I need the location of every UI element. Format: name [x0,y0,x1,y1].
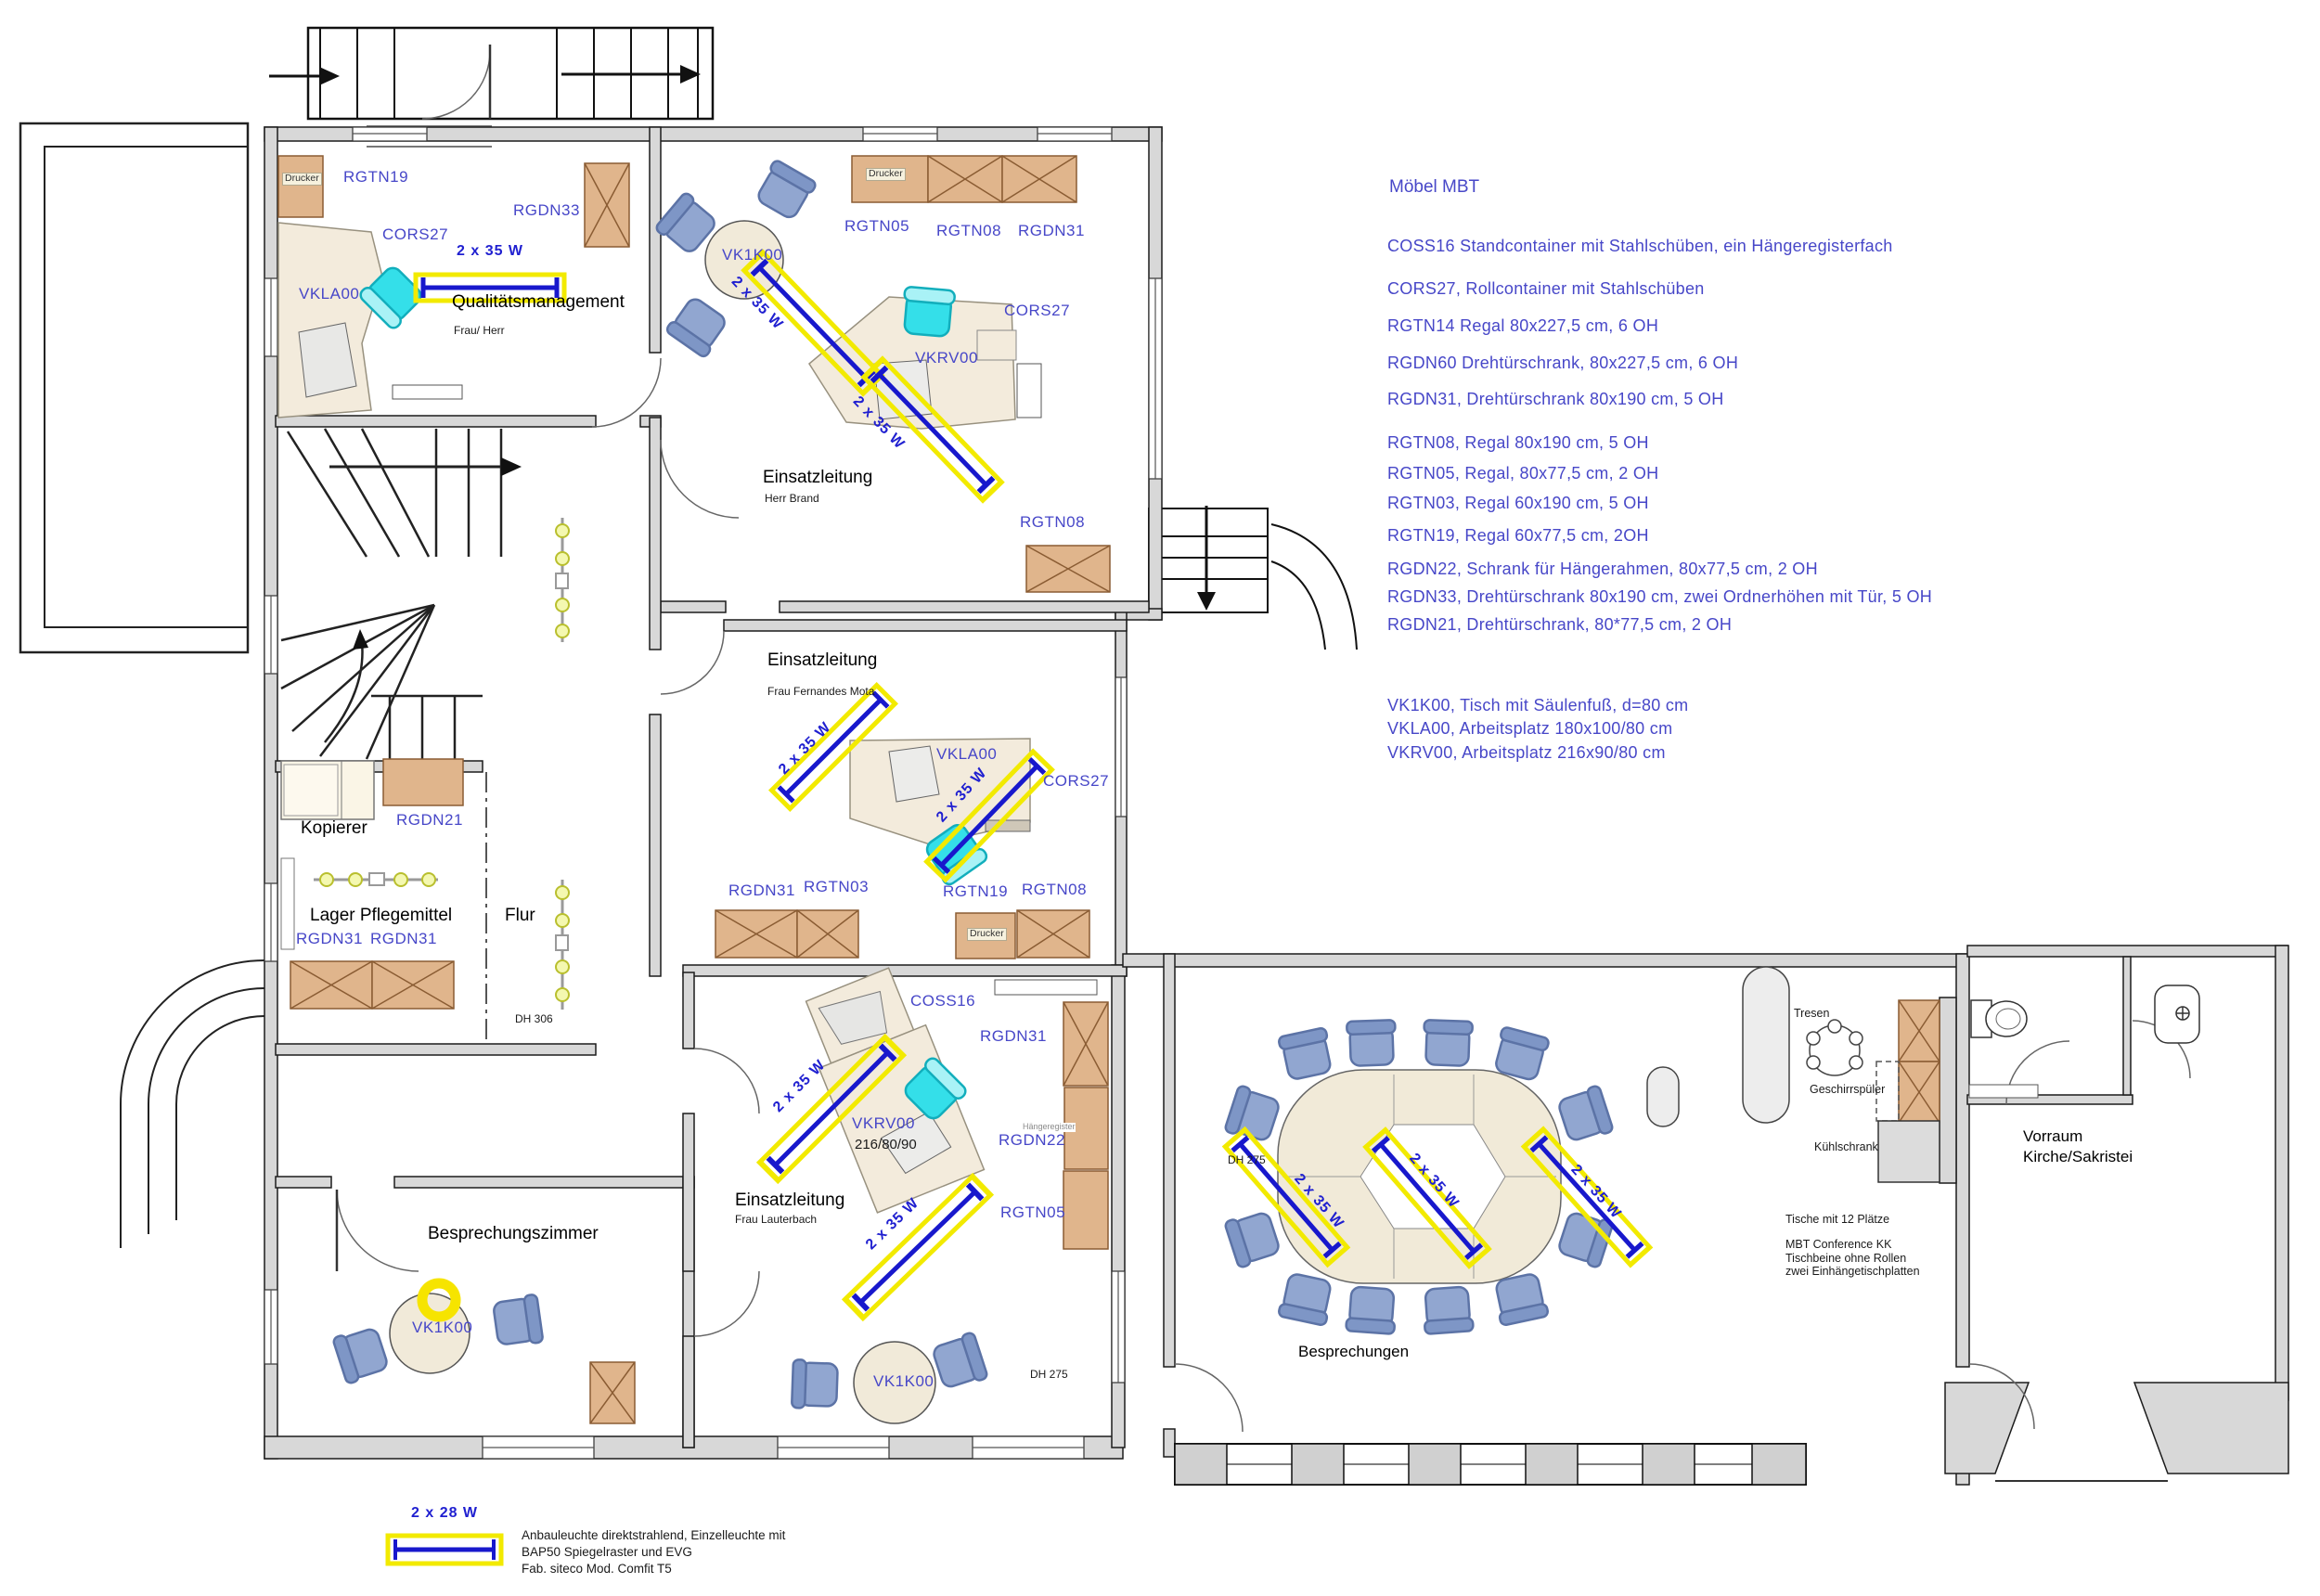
mid-cabinet-rgtn08 [1026,546,1110,592]
code-rgtn05: RGTN05 [844,218,909,236]
code-vk1k00: VK1K00 [873,1373,934,1391]
code-vkla00: VKLA00 [299,286,359,303]
code-rgdn21: RGDN21 [396,812,463,830]
room-name-besprechungszimmer: Besprechungszimmer [428,1225,599,1244]
code-vkrv00: VKRV00 [852,1115,915,1133]
code-rgdn33: RGDN33 [513,202,580,220]
legend-item: RGTN19, Regal 60x77,5 cm, 2OH [1387,527,1649,546]
room-name-lager: Lager Pflegemittel [310,907,452,926]
lamp-note-line1: Anbauleuchte direktstrahlend, Einzelleuc… [522,1529,785,1543]
code-cors27: CORS27 [1043,773,1109,791]
code-coss16: COSS16 [910,993,975,1010]
room-name-einsatzleitung-mota: Einsatzleitung [767,651,877,671]
code-vk1k00: VK1K00 [412,1319,472,1337]
legend-item: RGDN31, Drehtürschrank 80x190 cm, 5 OH [1387,391,1724,409]
exterior-path-arcs [121,960,264,1248]
legend-item: RGTN08, Regal 80x190 cm, 5 OH [1387,434,1649,453]
room-name-qualitaetsmanagement: Qualitätsmanagement [452,293,625,313]
lamp-note-line2: BAP50 Spiegelraster und EVG [522,1546,692,1560]
legend-item: RGTN14 Regal 80x227,5 cm, 6 OH [1387,317,1658,336]
desk-dimensions: 216/80/90 [855,1138,917,1153]
code-rgdn31: RGDN31 [370,931,437,948]
printer-label: Drucker [866,168,906,181]
room-name-einsatzleitung-brand: Einsatzleitung [763,469,872,488]
code-rgdn31: RGDN31 [1018,223,1085,240]
code-rgdn31: RGDN31 [728,882,795,900]
legend-lamp-symbol [388,1536,501,1564]
arrow-icon [353,629,368,650]
legend-item: RGDN60 Drehtürschrank, 80x227,5 cm, 6 OH [1387,354,1738,373]
room-occupant: Frau Fernandes Mota [767,686,874,698]
legend-item: VKRV00, Arbeitsplatz 216x90/80 cm [1387,744,1666,763]
legend-item: RGDN33, Drehtürschrank 80x190 cm, zwei O… [1387,588,1932,607]
code-rgtn08: RGTN08 [1022,882,1087,899]
code-rgtn19: RGTN19 [343,169,408,187]
window-band [1175,1444,1806,1485]
room-name-vorraum: Vorraum [2023,1128,2082,1146]
exterior-stair-right [1149,506,1357,650]
legend-title: Möbel MBT [1389,178,1479,198]
printer-label: Drucker [967,928,1007,941]
lamp-note-line3: Fab. siteco Mod. Comfit T5 [522,1563,672,1577]
legend-item: RGDN21, Drehtürschrank, 80*77,5 cm, 2 OH [1387,616,1732,635]
room-name-besprechungen: Besprechungen [1298,1344,1409,1361]
wattage-label-28w: 2 x 28 W [411,1505,478,1522]
legend-item: RGTN05, Regal, 80x77,5 cm, 2 OH [1387,465,1658,483]
code-vk1k00: VK1K00 [722,247,782,264]
legend-item: COSS16 Standcontainer mit Stahlschüben, … [1387,238,1893,256]
arrow-icon [501,457,522,476]
light-fixture [845,1177,990,1318]
legend-item: CORS27, Rollcontainer mit Stahlschüben [1387,280,1705,299]
code-vkrv00: VKRV00 [915,350,978,367]
arrow-icon [1197,592,1216,611]
legend-item: VK1K00, Tisch mit Säulenfuß, d=80 cm [1387,697,1688,715]
room-occupant: Frau/ Herr [454,325,505,337]
code-rgtn08: RGTN08 [1020,514,1085,532]
floorplan-drawing [0,0,2320,1596]
room-name-kopierer: Kopierer [301,819,367,839]
kitchen-area [1647,967,1940,1182]
legend-item: RGTN03, Regal 60x190 cm, 5 OH [1387,495,1649,513]
staircase-lower [281,605,483,759]
printer-label: Drucker [282,173,322,186]
ceiling-height-dh275: DH 275 [1030,1369,1068,1381]
room-name-vorraum-2: Kirche/Sakristei [2023,1149,2133,1166]
code-rgtn08: RGTN08 [936,223,1001,240]
legend-item: VKLA00, Arbeitsplatz 180x100/80 cm [1387,720,1672,739]
code-rgtn19: RGTN19 [943,883,1008,901]
conference-note-1: MBT Conference KK [1785,1239,1891,1252]
code-rgdn31: RGDN31 [296,931,363,948]
conference-note-2: Tischbeine ohne Rollen [1785,1253,1906,1266]
room-occupant: Frau Lauterbach [735,1214,817,1226]
room-name-einsatzleitung-lauterbach: Einsatzleitung [735,1191,844,1211]
floorplan: Drucker RGTN19 RGDN33 CORS27 2 x 35 W VK… [0,0,2320,1596]
room-name-flur: Flur [505,907,535,926]
code-rgtn03: RGTN03 [804,879,869,896]
dishwasher-label: Geschirrspüler [1810,1084,1885,1097]
tresen-label: Tresen [1794,1008,1829,1021]
ceiling-height-dh306: DH 306 [515,1013,553,1025]
code-cors27: CORS27 [382,226,448,244]
refrigerator [1878,1121,1940,1182]
code-cors27: CORS27 [1004,302,1070,320]
code-rgtn05: RGTN05 [1000,1204,1065,1222]
table-seats-note: Tische mit 12 Plätze [1785,1214,1889,1227]
walls [264,127,2288,1485]
ceiling-height-dh275: DH 275 [1228,1154,1266,1166]
code-vkla00: VKLA00 [936,746,997,764]
room-occupant: Herr Brand [765,493,819,505]
sink [2155,985,2199,1043]
terrace-outline [20,123,248,652]
legend-item: RGDN22, Schrank für Hängerahmen, 80x77,5… [1387,560,1818,579]
wattage-label: 2 x 35 W [457,243,523,260]
staircase-upper [288,429,509,557]
code-rgdn22: RGDN22 [999,1132,1065,1150]
conference-note-3: zwei Einhängetischplatten [1785,1266,1920,1279]
code-rgdn31: RGDN31 [980,1028,1047,1046]
refrigerator-label: Kühlschrank [1814,1141,1878,1154]
